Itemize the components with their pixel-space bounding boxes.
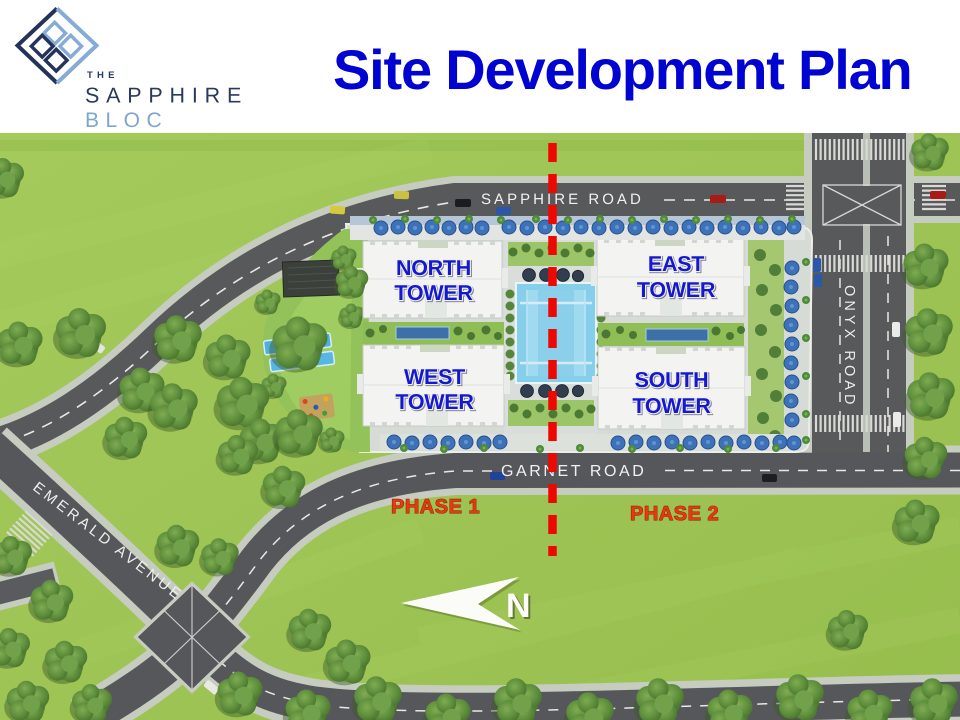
svg-text:SAPPHIRE: SAPPHIRE — [85, 84, 248, 108]
svg-text:TOWER: TOWER — [637, 278, 716, 302]
svg-text:THE: THE — [87, 70, 119, 81]
svg-text:PHASE 2: PHASE 2 — [630, 503, 719, 525]
svg-text:N: N — [506, 587, 531, 625]
svg-text:SAPPHIRE ROAD: SAPPHIRE ROAD — [481, 191, 644, 208]
svg-text:ONYX ROAD: ONYX ROAD — [841, 285, 857, 408]
svg-text:PHASE 1: PHASE 1 — [391, 496, 480, 518]
svg-text:BLOC: BLOC — [85, 109, 168, 132]
svg-text:TOWER: TOWER — [395, 390, 474, 414]
svg-text:TOWER: TOWER — [632, 394, 711, 418]
svg-text:SOUTH: SOUTH — [635, 368, 709, 392]
svg-text:EAST: EAST — [648, 252, 704, 276]
svg-text:TOWER: TOWER — [394, 281, 473, 305]
svg-text:GARNET ROAD: GARNET ROAD — [501, 463, 647, 480]
svg-text:NORTH: NORTH — [396, 256, 471, 280]
svg-text:WEST: WEST — [404, 365, 465, 389]
